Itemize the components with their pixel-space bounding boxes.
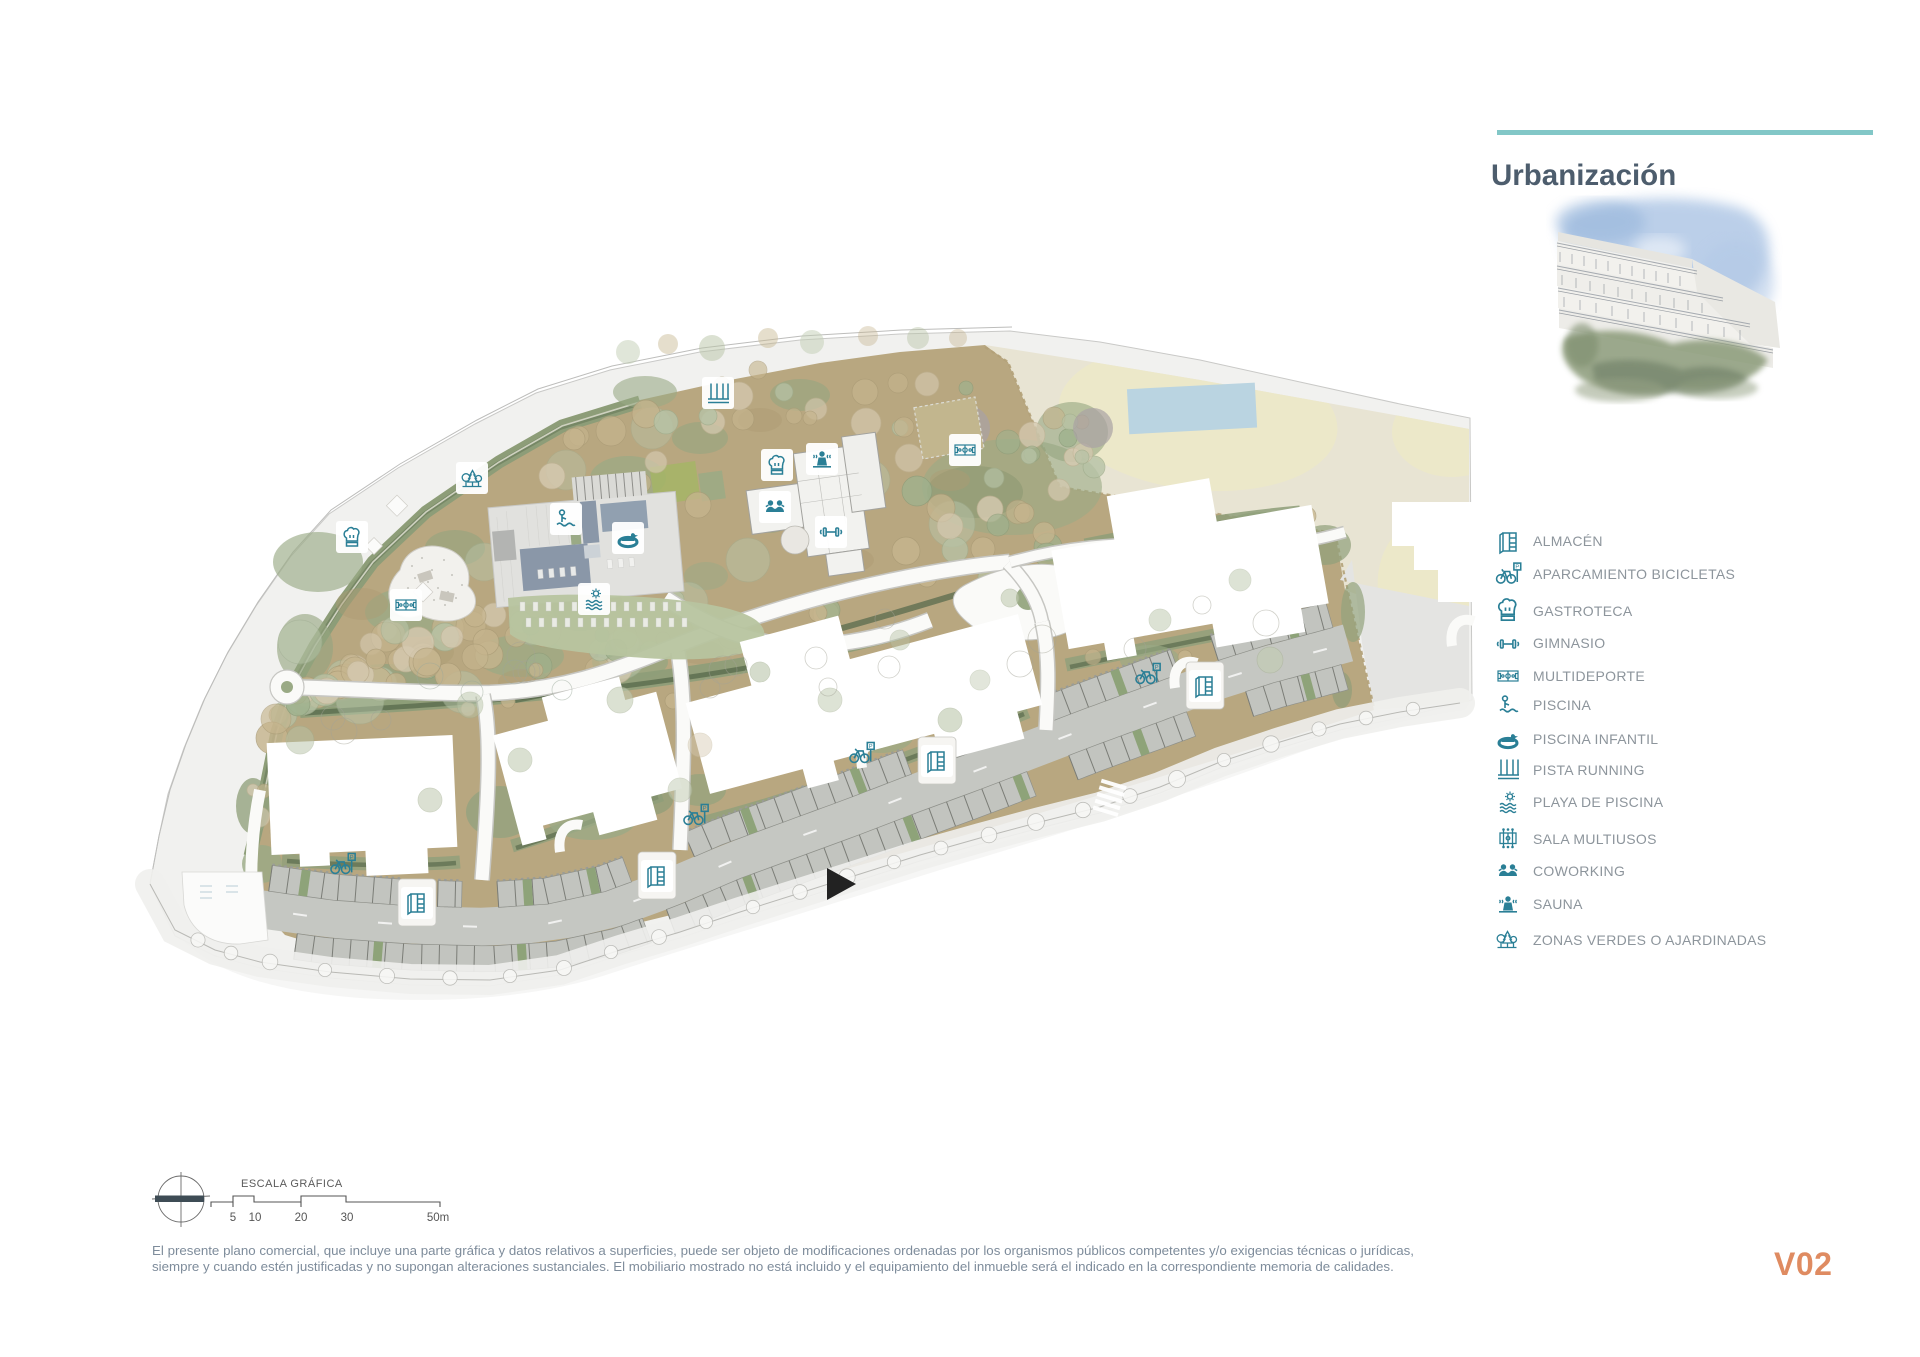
- svg-text:APARCAMIENTO BICICLETAS: APARCAMIENTO BICICLETAS: [1533, 566, 1735, 582]
- svg-text:PISCINA INFANTIL: PISCINA INFANTIL: [1533, 731, 1658, 747]
- svg-text:30: 30: [341, 1212, 354, 1224]
- svg-text:50m: 50m: [427, 1212, 449, 1224]
- svg-text:PISCINA: PISCINA: [1533, 697, 1591, 713]
- svg-text:ZONAS VERDES O AJARDINADAS: ZONAS VERDES O AJARDINADAS: [1533, 932, 1766, 948]
- svg-text:5: 5: [230, 1212, 236, 1224]
- svg-text:10: 10: [249, 1212, 262, 1224]
- svg-text:COWORKING: COWORKING: [1533, 863, 1625, 879]
- svg-text:SALA MULTIUSOS: SALA MULTIUSOS: [1533, 831, 1657, 847]
- svg-text:GASTROTECA: GASTROTECA: [1533, 603, 1633, 619]
- svg-text:ALMACÉN: ALMACÉN: [1533, 533, 1603, 549]
- svg-text:SAUNA: SAUNA: [1533, 896, 1583, 912]
- svg-text:PISTA RUNNING: PISTA RUNNING: [1533, 762, 1645, 778]
- svg-text:GIMNASIO: GIMNASIO: [1533, 635, 1605, 651]
- svg-text:MULTIDEPORTE: MULTIDEPORTE: [1533, 668, 1645, 684]
- svg-text:PLAYA DE PISCINA: PLAYA DE PISCINA: [1533, 794, 1664, 810]
- svg-text:20: 20: [295, 1212, 308, 1224]
